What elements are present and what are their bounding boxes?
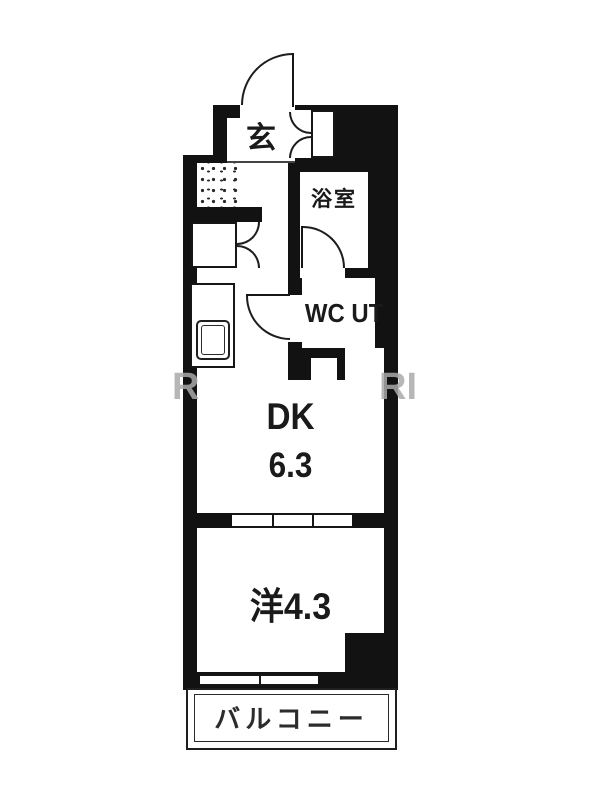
wc-door-gap — [288, 295, 302, 342]
bathroom-threshold — [300, 268, 345, 278]
sliding-partition — [232, 513, 352, 528]
genkan-label: 玄 — [227, 124, 295, 154]
floorplan: 玄 浴室 WC UT DK 6.3 洋4.3 バルコニー R RI — [0, 0, 600, 800]
dk-label: DK — [206, 398, 374, 435]
dk-wall-notch — [311, 358, 337, 380]
entrance-door-panel — [292, 53, 294, 107]
hall-closet — [191, 222, 237, 268]
corridor-upper — [242, 163, 288, 207]
balcony-label: バルコニー — [194, 706, 389, 732]
dk-size-label: 6.3 — [206, 448, 374, 483]
kitchen-tile-area — [197, 163, 242, 207]
western-room-label: 洋4.3 — [204, 588, 376, 625]
corridor-mid — [262, 207, 288, 222]
bathroom-label: 浴室 — [300, 189, 368, 210]
watermark-left: R — [172, 368, 199, 406]
entrance-door-arc — [241, 53, 293, 105]
entrance-door-opening — [240, 105, 295, 118]
balcony-window-tick — [259, 674, 261, 686]
genkan-step-line — [227, 161, 295, 163]
wc-ut-label: WC UT — [305, 300, 372, 326]
shoe-closet — [311, 110, 335, 158]
watermark-right: RI — [379, 368, 417, 406]
sliding-partition-tick-2 — [312, 513, 314, 528]
sliding-partition-tick-1 — [272, 513, 274, 528]
kitchen-sink-inner — [201, 325, 225, 355]
